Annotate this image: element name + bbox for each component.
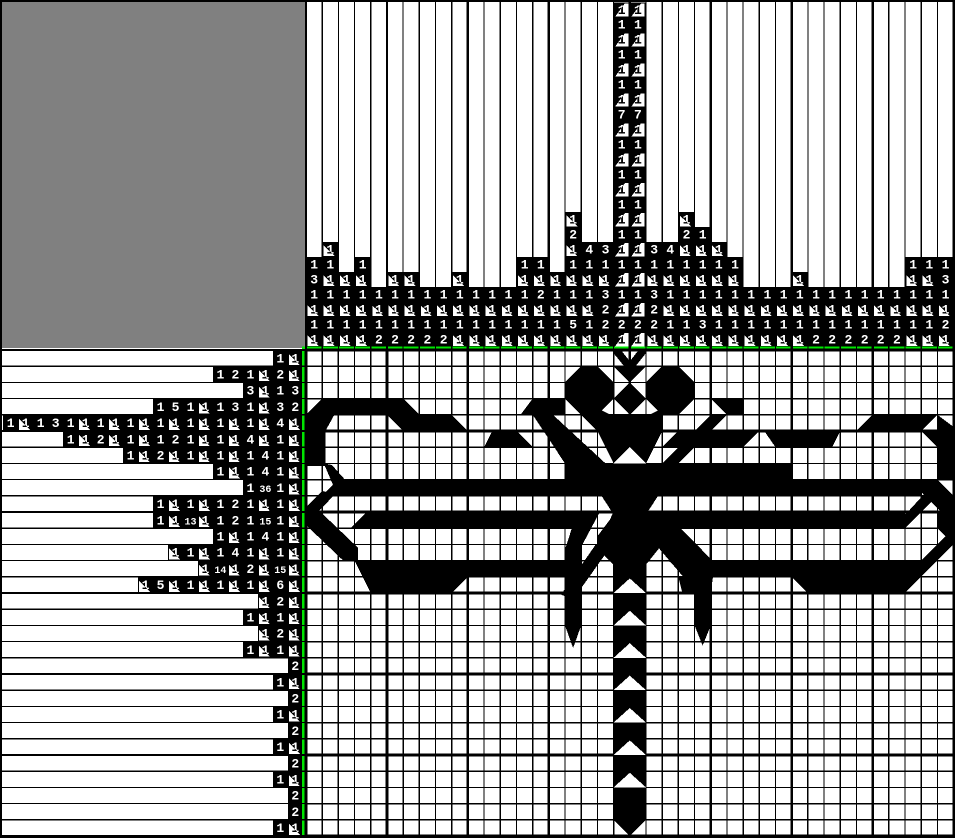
svg-text:3: 3: [650, 287, 658, 302]
svg-text:1: 1: [172, 546, 180, 561]
svg-text:1: 1: [618, 168, 626, 183]
svg-text:1: 1: [67, 432, 75, 447]
svg-text:1: 1: [201, 416, 209, 431]
svg-text:2: 2: [844, 332, 852, 347]
svg-text:2: 2: [246, 562, 254, 577]
svg-text:1: 1: [747, 332, 755, 347]
svg-text:1: 1: [276, 821, 284, 836]
svg-text:1: 1: [112, 432, 120, 447]
svg-text:1: 1: [715, 317, 723, 332]
svg-text:1: 1: [683, 213, 691, 228]
svg-text:1: 1: [291, 351, 299, 366]
svg-text:1: 1: [585, 332, 593, 347]
svg-text:1: 1: [504, 317, 512, 332]
svg-text:1: 1: [187, 432, 195, 447]
svg-text:1: 1: [291, 562, 299, 577]
svg-text:1: 1: [291, 546, 299, 561]
svg-text:1: 1: [407, 272, 415, 287]
svg-text:1: 1: [291, 611, 299, 626]
svg-text:1: 1: [699, 332, 707, 347]
svg-text:1: 1: [634, 213, 642, 228]
svg-text:1: 1: [585, 257, 593, 272]
svg-text:1: 1: [246, 611, 254, 626]
svg-text:1: 1: [553, 272, 561, 287]
svg-text:1: 1: [634, 168, 642, 183]
svg-text:2: 2: [231, 368, 239, 383]
svg-text:3: 3: [650, 242, 658, 257]
svg-text:1: 1: [201, 400, 209, 415]
svg-text:1: 1: [618, 198, 626, 213]
svg-text:1: 1: [157, 416, 165, 431]
svg-text:1: 1: [276, 351, 284, 366]
svg-text:1: 1: [634, 48, 642, 63]
svg-text:3: 3: [602, 242, 610, 257]
svg-text:1: 1: [291, 368, 299, 383]
svg-text:1: 1: [877, 287, 885, 302]
svg-text:1: 1: [909, 332, 917, 347]
svg-text:1: 1: [142, 449, 150, 464]
svg-text:4: 4: [261, 530, 269, 545]
svg-text:1: 1: [488, 332, 496, 347]
svg-text:1: 1: [699, 228, 707, 243]
svg-text:1: 1: [261, 497, 269, 512]
svg-text:1: 1: [683, 287, 691, 302]
svg-text:1: 1: [553, 302, 561, 317]
svg-text:1: 1: [521, 302, 529, 317]
svg-text:2: 2: [97, 432, 105, 447]
svg-text:1: 1: [127, 416, 135, 431]
svg-text:1: 1: [291, 432, 299, 447]
svg-text:1: 1: [187, 449, 195, 464]
svg-text:1: 1: [602, 257, 610, 272]
svg-text:1: 1: [537, 302, 545, 317]
svg-text:1: 1: [216, 530, 224, 545]
svg-text:2: 2: [618, 317, 626, 332]
svg-text:1: 1: [618, 78, 626, 93]
svg-text:1: 1: [715, 287, 723, 302]
svg-text:1: 1: [747, 302, 755, 317]
svg-text:1: 1: [602, 272, 610, 287]
svg-text:1: 1: [569, 257, 577, 272]
svg-text:1: 1: [634, 257, 642, 272]
svg-text:1: 1: [407, 287, 415, 302]
svg-text:1: 1: [359, 302, 367, 317]
svg-text:3: 3: [52, 416, 60, 431]
svg-text:1: 1: [618, 123, 626, 138]
svg-text:2: 2: [231, 513, 239, 528]
svg-text:1: 1: [201, 513, 209, 528]
svg-text:2: 2: [537, 287, 545, 302]
svg-text:1: 1: [276, 740, 284, 755]
svg-text:1: 1: [796, 317, 804, 332]
svg-text:1: 1: [569, 302, 577, 317]
svg-text:1: 1: [291, 821, 299, 836]
svg-text:1: 1: [157, 432, 165, 447]
svg-text:1: 1: [216, 513, 224, 528]
svg-text:1: 1: [618, 272, 626, 287]
svg-text:1: 1: [909, 317, 917, 332]
svg-text:1: 1: [909, 302, 917, 317]
svg-text:1: 1: [504, 302, 512, 317]
svg-text:1: 1: [634, 153, 642, 168]
svg-text:1: 1: [618, 332, 626, 347]
svg-text:2: 2: [276, 594, 284, 609]
svg-text:1: 1: [261, 368, 269, 383]
svg-text:1: 1: [893, 317, 901, 332]
svg-text:1: 1: [666, 257, 674, 272]
svg-text:1: 1: [142, 578, 150, 593]
svg-text:1: 1: [326, 302, 334, 317]
svg-text:1: 1: [201, 497, 209, 512]
svg-text:2: 2: [812, 332, 820, 347]
svg-text:2: 2: [569, 228, 577, 243]
svg-text:1: 1: [553, 317, 561, 332]
svg-text:1: 1: [359, 257, 367, 272]
svg-text:1: 1: [893, 287, 901, 302]
svg-text:1: 1: [310, 332, 318, 347]
svg-text:1: 1: [909, 257, 917, 272]
svg-text:1: 1: [187, 400, 195, 415]
svg-text:1: 1: [634, 272, 642, 287]
svg-text:1: 1: [216, 449, 224, 464]
svg-text:1: 1: [291, 481, 299, 496]
svg-text:2: 2: [231, 497, 239, 512]
svg-text:1: 1: [291, 578, 299, 593]
svg-text:1: 1: [231, 562, 239, 577]
svg-text:1: 1: [276, 384, 284, 399]
svg-text:1: 1: [521, 287, 529, 302]
svg-text:1: 1: [650, 272, 658, 287]
svg-text:1: 1: [683, 272, 691, 287]
svg-text:1: 1: [715, 272, 723, 287]
svg-text:1: 1: [683, 302, 691, 317]
svg-text:1: 1: [828, 302, 836, 317]
svg-text:1: 1: [343, 302, 351, 317]
svg-text:1: 1: [216, 465, 224, 480]
svg-text:1: 1: [291, 708, 299, 723]
svg-text:1: 1: [440, 302, 448, 317]
svg-text:2: 2: [291, 756, 299, 771]
svg-text:1: 1: [216, 416, 224, 431]
svg-text:1: 1: [216, 368, 224, 383]
svg-text:3: 3: [276, 400, 284, 415]
svg-text:1: 1: [634, 18, 642, 33]
svg-text:1: 1: [456, 302, 464, 317]
svg-text:1: 1: [22, 416, 30, 431]
svg-text:1: 1: [261, 546, 269, 561]
svg-text:1: 1: [291, 497, 299, 512]
svg-text:1: 1: [715, 242, 723, 257]
svg-text:4: 4: [261, 465, 269, 480]
svg-text:1: 1: [925, 332, 933, 347]
svg-text:4: 4: [276, 416, 284, 431]
svg-text:1: 1: [666, 272, 674, 287]
svg-text:1: 1: [585, 287, 593, 302]
svg-text:1: 1: [407, 302, 415, 317]
svg-text:1: 1: [172, 449, 180, 464]
svg-text:1: 1: [585, 317, 593, 332]
svg-text:1: 1: [423, 317, 431, 332]
svg-text:2: 2: [291, 400, 299, 415]
svg-text:5: 5: [569, 317, 577, 332]
svg-text:1: 1: [359, 272, 367, 287]
svg-text:1: 1: [276, 465, 284, 480]
svg-text:1: 1: [521, 332, 529, 347]
svg-text:1: 1: [440, 317, 448, 332]
svg-text:1: 1: [216, 578, 224, 593]
svg-text:5: 5: [157, 578, 165, 593]
svg-text:1: 1: [127, 449, 135, 464]
svg-text:1: 1: [276, 675, 284, 690]
svg-text:1: 1: [537, 332, 545, 347]
svg-text:7: 7: [618, 108, 626, 123]
svg-text:1: 1: [172, 497, 180, 512]
svg-text:1: 1: [172, 578, 180, 593]
svg-text:1: 1: [521, 317, 529, 332]
svg-text:1: 1: [291, 416, 299, 431]
svg-text:3: 3: [699, 317, 707, 332]
svg-text:1: 1: [231, 432, 239, 447]
svg-text:1: 1: [216, 497, 224, 512]
svg-text:1: 1: [157, 400, 165, 415]
svg-text:1: 1: [488, 302, 496, 317]
svg-text:1: 1: [699, 287, 707, 302]
svg-text:1: 1: [440, 287, 448, 302]
svg-text:1: 1: [291, 773, 299, 788]
svg-text:1: 1: [537, 317, 545, 332]
svg-text:1: 1: [246, 481, 254, 496]
svg-text:1: 1: [618, 257, 626, 272]
svg-text:1: 1: [359, 332, 367, 347]
svg-text:1: 1: [276, 497, 284, 512]
svg-text:2: 2: [602, 317, 610, 332]
svg-text:1: 1: [683, 332, 691, 347]
svg-text:1: 1: [391, 302, 399, 317]
svg-text:1: 1: [634, 33, 642, 48]
svg-text:1: 1: [715, 332, 723, 347]
svg-text:15: 15: [259, 517, 271, 528]
svg-text:1: 1: [201, 578, 209, 593]
svg-text:2: 2: [291, 724, 299, 739]
svg-text:1: 1: [780, 317, 788, 332]
svg-text:1: 1: [780, 287, 788, 302]
svg-text:1: 1: [650, 257, 658, 272]
svg-text:1: 1: [407, 317, 415, 332]
svg-text:4: 4: [585, 242, 593, 257]
svg-text:1: 1: [942, 332, 950, 347]
svg-text:1: 1: [456, 317, 464, 332]
svg-text:1: 1: [812, 317, 820, 332]
svg-text:1: 1: [187, 578, 195, 593]
svg-text:1: 1: [634, 183, 642, 198]
svg-text:1: 1: [618, 63, 626, 78]
svg-text:1: 1: [359, 317, 367, 332]
svg-text:1: 1: [747, 287, 755, 302]
svg-text:1: 1: [828, 287, 836, 302]
svg-text:1: 1: [909, 287, 917, 302]
svg-text:1: 1: [666, 332, 674, 347]
svg-text:1: 1: [246, 643, 254, 658]
svg-text:1: 1: [261, 416, 269, 431]
svg-text:1: 1: [877, 302, 885, 317]
svg-text:1: 1: [291, 627, 299, 642]
svg-text:1: 1: [423, 302, 431, 317]
svg-text:1: 1: [780, 332, 788, 347]
svg-text:1: 1: [276, 546, 284, 561]
svg-text:13: 13: [184, 517, 196, 528]
svg-text:7: 7: [634, 108, 642, 123]
svg-text:2: 2: [375, 332, 383, 347]
svg-text:1: 1: [97, 416, 105, 431]
svg-text:1: 1: [763, 317, 771, 332]
svg-text:2: 2: [942, 317, 950, 332]
svg-text:1: 1: [763, 302, 771, 317]
svg-text:1: 1: [618, 302, 626, 317]
svg-text:1: 1: [261, 643, 269, 658]
svg-text:1: 1: [683, 317, 691, 332]
svg-text:2: 2: [861, 332, 869, 347]
svg-text:1: 1: [861, 317, 869, 332]
svg-text:1: 1: [231, 449, 239, 464]
svg-text:1: 1: [925, 317, 933, 332]
svg-text:1: 1: [747, 317, 755, 332]
svg-text:3: 3: [310, 272, 318, 287]
svg-text:1: 1: [326, 242, 334, 257]
svg-text:1: 1: [731, 287, 739, 302]
svg-text:3: 3: [942, 272, 950, 287]
svg-text:2: 2: [157, 449, 165, 464]
svg-text:1: 1: [201, 432, 209, 447]
svg-text:1: 1: [521, 272, 529, 287]
svg-text:1: 1: [634, 138, 642, 153]
svg-text:1: 1: [553, 287, 561, 302]
svg-text:1: 1: [618, 18, 626, 33]
svg-text:1: 1: [861, 287, 869, 302]
svg-text:1: 1: [731, 272, 739, 287]
svg-text:2: 2: [291, 692, 299, 707]
svg-text:1: 1: [246, 400, 254, 415]
svg-text:2: 2: [391, 332, 399, 347]
svg-text:1: 1: [585, 272, 593, 287]
svg-text:1: 1: [246, 546, 254, 561]
svg-text:1: 1: [201, 562, 209, 577]
svg-text:4: 4: [666, 242, 674, 257]
svg-text:1: 1: [666, 287, 674, 302]
svg-text:1: 1: [231, 465, 239, 480]
svg-text:1: 1: [276, 773, 284, 788]
svg-text:1: 1: [343, 332, 351, 347]
svg-text:1: 1: [261, 384, 269, 399]
svg-text:1: 1: [391, 287, 399, 302]
svg-text:1: 1: [715, 257, 723, 272]
svg-text:1: 1: [715, 302, 723, 317]
svg-text:1: 1: [585, 302, 593, 317]
svg-text:1: 1: [569, 272, 577, 287]
svg-text:1: 1: [246, 578, 254, 593]
svg-text:3: 3: [602, 287, 610, 302]
svg-text:1: 1: [812, 302, 820, 317]
svg-text:3: 3: [231, 400, 239, 415]
svg-text:1: 1: [828, 317, 836, 332]
svg-text:1: 1: [246, 449, 254, 464]
svg-text:2: 2: [291, 805, 299, 820]
svg-text:1: 1: [602, 332, 610, 347]
svg-text:1: 1: [634, 287, 642, 302]
svg-text:1: 1: [699, 302, 707, 317]
svg-text:2: 2: [440, 332, 448, 347]
svg-text:1: 1: [291, 449, 299, 464]
svg-text:1: 1: [504, 332, 512, 347]
svg-text:1: 1: [231, 578, 239, 593]
svg-text:1: 1: [618, 3, 626, 18]
svg-text:1: 1: [634, 3, 642, 18]
svg-text:1: 1: [261, 594, 269, 609]
svg-text:2: 2: [877, 332, 885, 347]
svg-text:1: 1: [456, 287, 464, 302]
svg-text:2: 2: [650, 317, 658, 332]
svg-text:1: 1: [261, 627, 269, 642]
svg-text:1: 1: [618, 242, 626, 257]
svg-text:1: 1: [569, 213, 577, 228]
svg-text:1: 1: [699, 272, 707, 287]
svg-text:1: 1: [634, 63, 642, 78]
svg-text:1: 1: [942, 302, 950, 317]
svg-text:1: 1: [569, 332, 577, 347]
svg-text:1: 1: [634, 332, 642, 347]
svg-text:1: 1: [634, 242, 642, 257]
svg-text:1: 1: [521, 257, 529, 272]
svg-text:1: 1: [731, 302, 739, 317]
svg-text:1: 1: [157, 497, 165, 512]
svg-text:1: 1: [537, 272, 545, 287]
svg-text:1: 1: [893, 302, 901, 317]
svg-text:1: 1: [276, 708, 284, 723]
svg-text:1: 1: [877, 317, 885, 332]
svg-text:1: 1: [796, 287, 804, 302]
svg-text:1: 1: [375, 302, 383, 317]
svg-text:1: 1: [157, 513, 165, 528]
svg-text:1: 1: [82, 416, 90, 431]
svg-text:1: 1: [276, 449, 284, 464]
svg-text:1: 1: [634, 302, 642, 317]
svg-text:2: 2: [291, 789, 299, 804]
svg-text:1: 1: [246, 465, 254, 480]
svg-text:1: 1: [618, 33, 626, 48]
svg-text:1: 1: [246, 416, 254, 431]
svg-text:1: 1: [67, 416, 75, 431]
svg-text:2: 2: [276, 368, 284, 383]
svg-text:1: 1: [488, 317, 496, 332]
svg-text:1: 1: [142, 416, 150, 431]
svg-text:1: 1: [634, 123, 642, 138]
svg-text:1: 1: [310, 302, 318, 317]
svg-text:1: 1: [472, 302, 480, 317]
svg-text:1: 1: [618, 138, 626, 153]
svg-text:1: 1: [261, 578, 269, 593]
svg-text:2: 2: [828, 332, 836, 347]
svg-text:3: 3: [291, 384, 299, 399]
svg-text:1: 1: [909, 272, 917, 287]
svg-text:1: 1: [261, 611, 269, 626]
svg-text:1: 1: [201, 449, 209, 464]
svg-text:1: 1: [666, 302, 674, 317]
svg-text:1: 1: [187, 546, 195, 561]
svg-text:1: 1: [326, 257, 334, 272]
svg-text:1: 1: [343, 317, 351, 332]
svg-text:1: 1: [261, 400, 269, 415]
svg-text:1: 1: [310, 287, 318, 302]
svg-text:1: 1: [291, 675, 299, 690]
